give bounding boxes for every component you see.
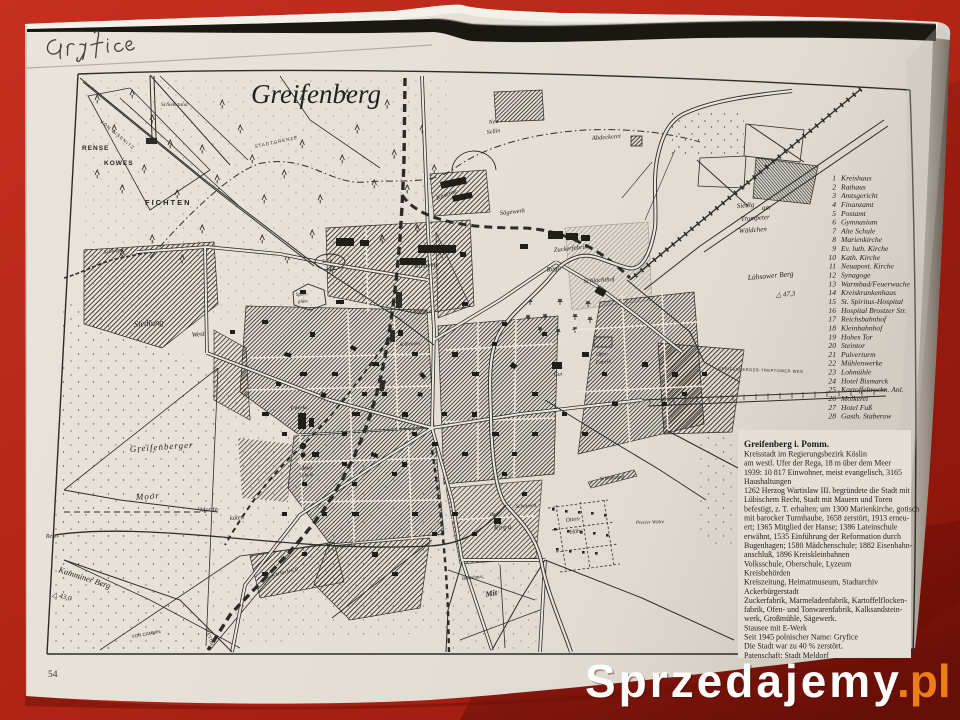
svg-text:Reichsbahnhof: Reichsbahnhof — [840, 315, 887, 324]
svg-text:Stausee mit E-Werk: Stausee mit E-Werk — [744, 623, 807, 632]
svg-text:Haushaltungen: Haushaltungen — [744, 477, 791, 486]
svg-text:15: 15 — [828, 297, 836, 306]
svg-text:mit barocker Turmhaube, 1658 z: mit barocker Turmhaube, 1658 zerstört, 1… — [744, 514, 910, 523]
svg-text:Gut: Gut — [554, 371, 563, 378]
svg-text:Hohes Tor: Hohes Tor — [840, 332, 873, 341]
svg-text:14: 14 — [828, 288, 836, 297]
svg-text:Kreiszeitung, Heimatmuseum, St: Kreiszeitung, Heimatmuseum, Stadtarchiv — [744, 578, 878, 587]
svg-text:Rega.: Rega. — [45, 533, 60, 540]
svg-text:21: 21 — [828, 350, 836, 359]
svg-text:18: 18 — [828, 323, 836, 332]
svg-text:Gasth. Staberow: Gasth. Staberow — [841, 412, 892, 421]
svg-text:Kreisstadt im Regierungsbezirk: Kreisstadt im Regierungsbezirk Köslin — [744, 450, 867, 459]
svg-text:Mittel-: Mittel- — [299, 466, 314, 472]
svg-text:ert; 1365 Mitglied der Hanse;: ert; 1365 Mitglied der Hanse; 1386 Latei… — [744, 523, 898, 532]
svg-text:.pl: .pl — [897, 655, 951, 707]
svg-text:Lohmühle: Lohmühle — [840, 368, 872, 377]
svg-text:Lübischem Recht, Stadt mit Mau: Lübischem Recht, Stadt mit Mauern und To… — [744, 495, 893, 504]
svg-text:Seit 1945 polnischer Name: Gry: Seit 1945 polnischer Name: Gryfice — [744, 633, 858, 642]
svg-text:Greifenberg i. Pomm.: Greifenberg i. Pomm. — [744, 439, 829, 449]
svg-text:26: 26 — [828, 394, 836, 403]
svg-text:Kartoffeltrockn. Anl.: Kartoffeltrockn. Anl. — [840, 385, 904, 394]
svg-text:1: 1 — [832, 174, 836, 183]
svg-text:11: 11 — [829, 262, 836, 271]
svg-text:54: 54 — [48, 670, 58, 680]
svg-text:Previer Wäire: Previer Wäire — [635, 520, 665, 526]
svg-text:Pulverturm: Pulverturm — [840, 350, 876, 359]
svg-text:Ackerbürgerstadt: Ackerbürgerstadt — [744, 587, 799, 596]
svg-text:Hotel Bismarck: Hotel Bismarck — [840, 376, 889, 385]
svg-text:katen: katen — [230, 514, 245, 522]
svg-text:KOWES: KOWES — [104, 160, 134, 167]
svg-text:Kath. Kirche: Kath. Kirche — [840, 253, 881, 262]
svg-text:Kreishaus: Kreishaus — [840, 174, 872, 183]
svg-text:Kreiskrankenhaus: Kreiskrankenhaus — [840, 288, 896, 297]
svg-text:Moor: Moor — [134, 490, 160, 502]
svg-text:9: 9 — [832, 244, 836, 253]
svg-text:T.Werke: T.Werke — [290, 405, 308, 412]
svg-text:Gymnasium: Gymnasium — [841, 218, 878, 227]
svg-text:24: 24 — [828, 376, 836, 385]
svg-text:St. Spiritus-Hospital: St. Spiritus-Hospital — [841, 297, 903, 306]
svg-text:1939: 10 817 Einwohner, meist: 1939: 10 817 Einwohner, meist evangelisc… — [744, 468, 902, 477]
svg-text:fabrik, Ofen- und Tonwarenfabr: fabrik, Ofen- und Tonwarenfabrik, Kalksa… — [744, 605, 903, 614]
svg-text:befestigt, z. T. erhalten; um: befestigt, z. T. erhalten; um 1300 Marie… — [744, 504, 919, 513]
svg-text:12: 12 — [828, 271, 836, 280]
svg-text:22: 22 — [828, 359, 836, 368]
svg-text:Amtsgericht: Amtsgericht — [840, 191, 879, 200]
svg-text:28: 28 — [828, 412, 836, 421]
svg-text:Warmbad/Feuerwache: Warmbad/Feuerwache — [841, 279, 911, 288]
svg-text:Moritz-: Moritz- — [199, 506, 220, 514]
svg-text:8: 8 — [832, 235, 836, 244]
svg-text:Siedlung: Siedlung — [133, 317, 163, 329]
svg-text:Bad: Bad — [490, 512, 499, 518]
svg-text:FICHTEN: FICHTEN — [145, 198, 192, 207]
svg-text:RENSE: RENSE — [82, 145, 109, 152]
svg-text:Marienkirche: Marienkirche — [840, 235, 883, 244]
svg-text:Fabrik: Fabrik — [595, 359, 612, 366]
svg-text:am: am — [762, 203, 771, 212]
svg-text:23: 23 — [828, 368, 836, 377]
svg-text:19: 19 — [828, 332, 836, 341]
svg-text:1262 Herzog Wartislaw III. beg: 1262 Herzog Wartislaw III. begründete di… — [744, 486, 911, 495]
svg-text:17: 17 — [828, 315, 837, 324]
svg-text:Schule: Schule — [300, 473, 314, 479]
svg-text:Sport-: Sport- — [296, 292, 309, 298]
svg-text:Kreisbehörden: Kreisbehörden — [744, 569, 791, 578]
svg-text:Bugenhagen; 1580 Mädchenschule: Bugenhagen; 1580 Mädchenschule; 1882 Eis… — [744, 541, 913, 550]
svg-text:3: 3 — [831, 191, 836, 200]
svg-text:platz: platz — [297, 299, 308, 305]
svg-text:Neuapost. Kirche: Neuapost. Kirche — [840, 262, 895, 271]
svg-text:16: 16 — [828, 306, 836, 315]
svg-text:werk, Großmühle, Sägewerk.: werk, Großmühle, Sägewerk. — [744, 614, 837, 623]
svg-text:Mühlenwerke: Mühlenwerke — [840, 359, 883, 368]
svg-text:Steintor: Steintor — [841, 341, 865, 350]
svg-text:25: 25 — [828, 385, 836, 394]
svg-text:2: 2 — [832, 182, 836, 191]
svg-text:erwähnt, 1535 Einführung der R: erwähnt, 1535 Einführung der Reformation… — [744, 532, 901, 541]
svg-text:4: 4 — [832, 200, 836, 209]
svg-text:Postamt: Postamt — [840, 209, 867, 218]
svg-text:Siedlg: Siedlg — [737, 201, 756, 210]
svg-text:Alte Schule: Alte Schule — [840, 226, 876, 235]
svg-text:Hotel Fuß: Hotel Fuß — [840, 403, 872, 412]
svg-text:Synagoge: Synagoge — [841, 271, 871, 280]
svg-text:Hospital Brostzer Str.: Hospital Brostzer Str. — [840, 306, 906, 315]
svg-text:Kleinbahnhof: Kleinbahnhof — [840, 323, 883, 332]
svg-text:△ 47,3: △ 47,3 — [775, 290, 796, 299]
svg-text:Die Stadt war zu 40 % zerstört: Die Stadt war zu 40 % zerstört. — [744, 642, 843, 651]
svg-text:Finanzamt: Finanzamt — [840, 200, 874, 209]
svg-text:Ev. luth. Kirche: Ev. luth. Kirche — [840, 244, 889, 253]
svg-text:20: 20 — [828, 341, 836, 350]
svg-text:Zuckerfabrik, Marmeladenfabrik: Zuckerfabrik, Marmeladenfabrik, Kartoffe… — [744, 596, 907, 605]
svg-text:13: 13 — [828, 279, 836, 288]
svg-text:6: 6 — [832, 218, 836, 227]
svg-text:anschluß, 1896 Kreiskleinbahne: anschluß, 1896 Kreiskleinbahnen — [744, 550, 849, 559]
svg-text:5: 5 — [832, 209, 836, 218]
svg-text:Molkerei: Molkerei — [840, 394, 868, 403]
svg-text:Rega: Rega — [493, 523, 513, 532]
svg-text:Kaserne: Kaserne — [413, 260, 440, 270]
svg-text:Teich: Teich — [322, 259, 333, 265]
svg-text:West: West — [191, 330, 206, 339]
svg-text:am westl. Ufer der Rega, 18 m: am westl. Ufer der Rega, 18 m über dem M… — [744, 459, 891, 468]
svg-text:27: 27 — [828, 403, 837, 412]
svg-text:Sprzedajemy: Sprzedajemy — [585, 655, 902, 707]
svg-text:Volksschule, Oberschule, Lyzeu: Volksschule, Oberschule, Lyzeum — [744, 559, 852, 568]
svg-text:Ofen-: Ofen- — [596, 350, 609, 358]
svg-text:Rathaus: Rathaus — [840, 182, 866, 191]
svg-text:10: 10 — [828, 253, 836, 262]
